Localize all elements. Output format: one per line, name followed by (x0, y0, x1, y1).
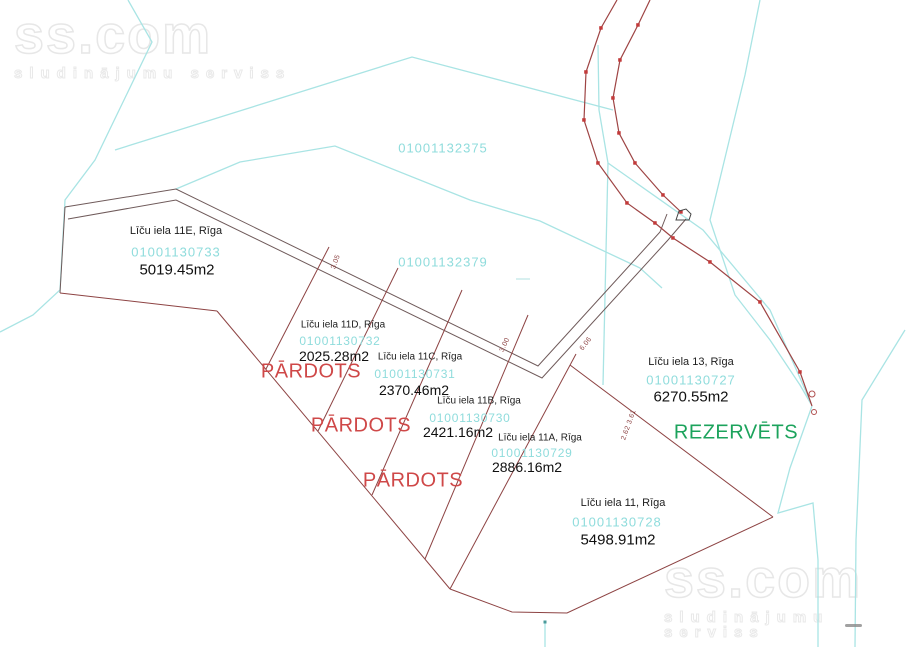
plot-title-11d: Līču iela 11D, Rīga (301, 320, 385, 331)
vertex-marker (653, 221, 657, 225)
status-reserved-13: REZERVĒTS (674, 422, 798, 445)
plot-11e-west-edge (60, 207, 65, 293)
plot-area-11b: 2421.16m2 (423, 424, 493, 440)
vertex-marker (661, 193, 665, 197)
plot-area-11e: 5019.45m2 (139, 262, 214, 279)
vertex-marker (636, 23, 640, 27)
boundary-cyan-ridge (115, 57, 613, 150)
status-sold-11b: PĀRDOTS (363, 470, 463, 493)
plot-title-11a: Līču iela 11A, Rīga (498, 433, 582, 444)
plot-cadastre-11c: 01001130731 (374, 367, 455, 381)
boundary-cyan-road-inner (598, 45, 811, 403)
small-structure-outline (676, 209, 691, 220)
plot-11e-south-edge (60, 293, 217, 311)
status-sold-11c: PĀRDOTS (311, 415, 411, 438)
parcel-id-132379: 01001132379 (398, 255, 488, 270)
vertex-marker (633, 161, 637, 165)
boundary-cyan-far-east (855, 330, 905, 647)
plot-cadastre-11: 01001130728 (572, 515, 662, 530)
plot-area-11a: 2886.16m2 (492, 459, 562, 475)
curved-road-east-line (613, 0, 681, 212)
map-lines-svg (0, 0, 910, 647)
subdivision-lines (60, 247, 773, 613)
vertex-marker (599, 26, 603, 30)
vertex-marker (584, 70, 588, 74)
vertex-marker (708, 260, 712, 264)
plot-area-13: 6270.55m2 (653, 389, 728, 406)
vertex-marker (625, 201, 629, 205)
vertex-marker (582, 118, 586, 122)
plot-cadastre-11e: 01001130733 (131, 245, 221, 260)
vertex-marker (596, 161, 600, 165)
parcel-id-132375: 01001132375 (398, 141, 488, 156)
cyan-boundaries (0, 0, 905, 647)
plot-area-11: 5498.91m2 (580, 532, 655, 549)
plot-title-11: Līču iela 11, Rīga (581, 497, 666, 509)
plot-title-11e: Līču iela 11E, Rīga (130, 225, 222, 237)
survey-point-marker (544, 621, 547, 624)
plot-cadastre-11a: 01001130729 (491, 446, 572, 460)
vertex-marker (611, 96, 615, 100)
plot-cadastre-13: 01001130727 (646, 373, 736, 388)
plot-title-11b: Līču iela 11B, Rīga (437, 396, 521, 407)
vertex-marker (758, 300, 762, 304)
vertex-marker (618, 58, 622, 62)
circle-marker (809, 391, 815, 397)
faint-annotation (516, 278, 530, 280)
road-vertex-markers (582, 23, 802, 374)
boundary-cyan-northeast (710, 0, 811, 404)
plot-cadastre-11d: 01001130732 (299, 334, 380, 348)
status-sold-11d: PĀRDOTS (261, 361, 361, 384)
plot-cadastre-11b: 01001130730 (429, 411, 510, 425)
tiny-annotation (845, 624, 862, 627)
vertex-marker (617, 131, 621, 135)
boundary-cyan-vertical-stub (603, 163, 608, 385)
boundary-cyan-west (0, 0, 152, 332)
vertex-marker (671, 236, 675, 240)
road-strip (60, 189, 686, 378)
plot-title-11c: Līču iela 11C, Rīga (378, 352, 462, 363)
vertex-marker (798, 370, 802, 374)
plot-title-13: Līču iela 13, Rīga (648, 356, 734, 368)
circle-marker (812, 410, 817, 415)
cadastral-map: ss.com sludinājumu serviss ss.com sludin… (0, 0, 910, 647)
